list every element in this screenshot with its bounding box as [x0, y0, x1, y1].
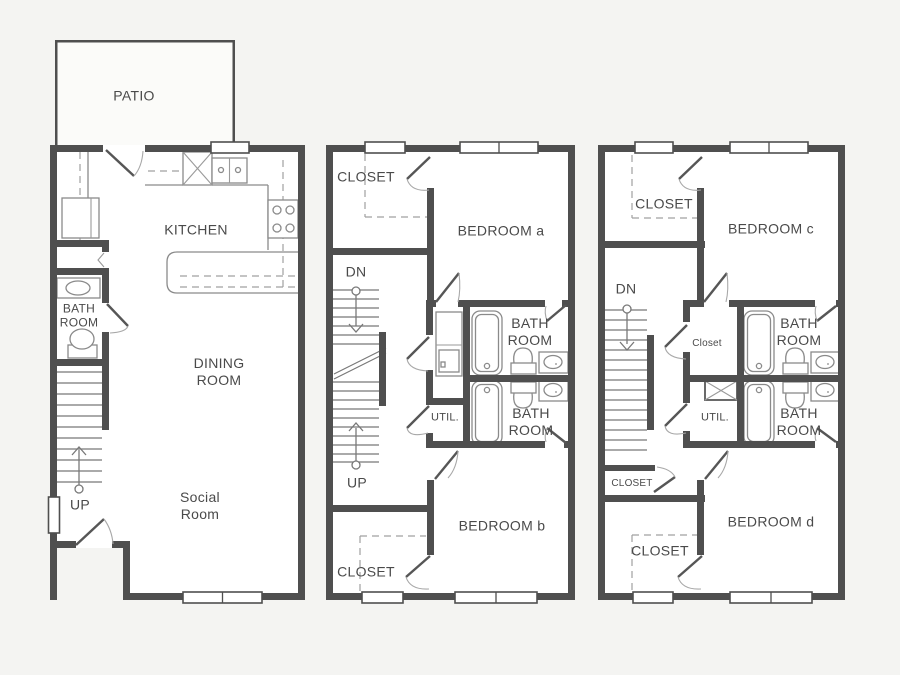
label-bathroom-1f: BATH ROOM [55, 302, 103, 331]
label-up-1f: UP [70, 497, 90, 514]
label-closet-stairs-3f: CLOSET [611, 478, 652, 490]
label-bathroom-upper-3f: BATH ROOM [773, 315, 825, 349]
bathtub-icon [744, 381, 774, 445]
window [362, 592, 403, 603]
refrigerator-icon [62, 198, 99, 238]
label-kitchen: KITCHEN [164, 222, 228, 239]
sink-icon [539, 352, 568, 373]
label-closet-bottom-2f: CLOSET [337, 564, 395, 581]
bathtub-icon [472, 311, 502, 375]
kitchen-sink-icon [212, 158, 247, 183]
label-bedroom-b: BEDROOM b [459, 518, 546, 535]
label-closet-top-2f: CLOSET [337, 169, 395, 186]
water-heater-icon [705, 381, 737, 400]
sink-icon [811, 352, 840, 373]
label-closet-bottom-3f: CLOSET [631, 543, 689, 560]
corner-sink-icon [183, 152, 212, 185]
label-utility-3f: UTIL. [701, 411, 729, 424]
label-social-room: Social Room [171, 489, 229, 523]
window [365, 142, 405, 153]
sink-icon [539, 380, 568, 401]
floor-plan-sheet: PATIO KITCHEN BATH ROOM DINING ROOM Soci… [0, 0, 900, 675]
label-utility-2f: UTIL. [431, 411, 459, 424]
stove-icon [268, 200, 298, 238]
toilet-icon [68, 329, 97, 358]
label-closet-top-3f: CLOSET [635, 196, 693, 213]
window [211, 142, 249, 153]
label-bathroom-upper-2f: BATH ROOM [504, 315, 556, 349]
sink-icon [57, 278, 100, 298]
sink-icon [811, 380, 840, 401]
window [635, 142, 673, 153]
label-closet-mid-3f: Closet [692, 338, 722, 350]
label-bedroom-c: BEDROOM c [728, 221, 814, 238]
label-bathroom-lower-2f: BATH ROOM [505, 405, 557, 439]
label-dining-room: DINING ROOM [185, 355, 253, 389]
patio-wall [55, 40, 58, 148]
label-bedroom-d: BEDROOM d [728, 514, 815, 531]
window [633, 592, 673, 603]
laundry-cabinet-icon [436, 312, 462, 376]
label-patio: PATIO [113, 88, 154, 105]
patio-wall [233, 40, 236, 148]
label-bedroom-a: BEDROOM a [458, 223, 545, 240]
bathtub-icon [744, 311, 774, 375]
label-dn-3f: DN [616, 281, 637, 298]
label-bathroom-lower-3f: BATH ROOM [773, 405, 825, 439]
label-dn-2f: DN [346, 264, 367, 281]
label-up-2f: UP [347, 475, 367, 492]
patio-wall [55, 40, 235, 43]
window [49, 497, 60, 533]
bathtub-icon [472, 381, 502, 445]
